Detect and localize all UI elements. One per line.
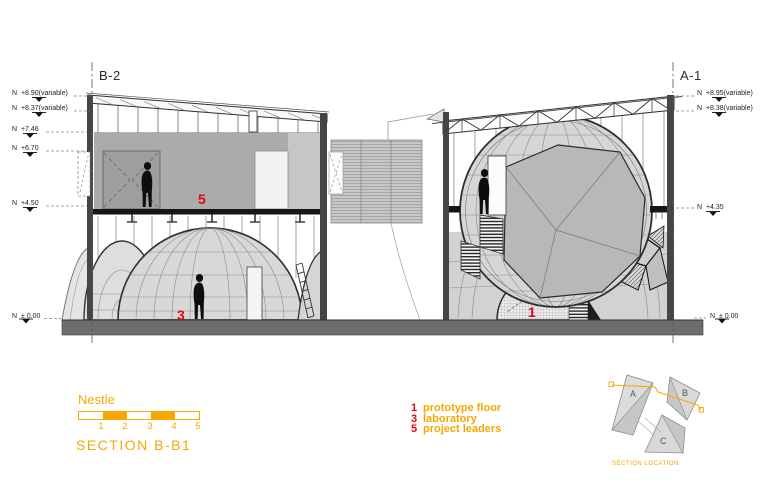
level-label: N +8.37(variable) <box>12 105 68 112</box>
level-label: N +6.70 <box>12 145 39 152</box>
room-legend: 1prototype floor 3laboratory 5project le… <box>411 403 501 435</box>
scale-segment <box>127 412 151 419</box>
key-plan-caption: SECTION LOCATION <box>612 460 679 467</box>
sphere-doorway <box>488 156 506 215</box>
legend-number: 1 <box>411 403 423 414</box>
scale-tick: 2 <box>119 421 131 432</box>
level-label: N +4.35 <box>697 204 724 211</box>
side-fin-panel <box>78 152 90 196</box>
roof-wedge <box>427 109 444 122</box>
key-plan-label-b: B <box>682 388 688 398</box>
scale-tick: 3 <box>144 421 156 432</box>
scale-segment <box>79 412 103 419</box>
scale-tick: 4 <box>168 421 180 432</box>
level-label: N +8.95(variable) <box>697 90 753 97</box>
upper-door <box>255 151 288 209</box>
legend-item: 5project leaders <box>411 424 501 435</box>
key-plan: A B C SECTION LOCATION <box>609 375 704 467</box>
right-building-left-wall <box>443 112 449 320</box>
stair-flight-upper <box>480 215 503 254</box>
drawing-sheet: B-2 A-1 N +8.90(variable) N +8.37(variab… <box>0 0 760 489</box>
scale-segment <box>151 412 175 419</box>
roof-hatch <box>249 111 257 132</box>
tag-laboratory: 3 <box>177 307 185 323</box>
tag-project-leaders: 5 <box>198 191 206 207</box>
level-markers-right: N +8.95(variable) N +8.38(variable) N +4… <box>676 90 753 324</box>
level-label: N +8.90(variable) <box>12 90 68 97</box>
left-building-right-wall <box>320 113 327 320</box>
drawing-title: SECTION B-B1 <box>76 437 191 453</box>
bridge-block <box>329 114 433 320</box>
level-label: N +7.46 <box>12 126 39 133</box>
key-plan-label-c: C <box>660 436 667 446</box>
client-name: Nestle <box>78 392 115 407</box>
level-label: N +8.38(variable) <box>697 105 753 112</box>
tag-prototype-floor: 1 <box>528 304 536 320</box>
level-label: N +4.50 <box>12 200 39 207</box>
left-roof <box>88 95 327 122</box>
left-building <box>62 93 329 320</box>
legend-number: 5 <box>411 424 423 435</box>
void-outline <box>388 114 433 140</box>
grid-label-b2: B-2 <box>99 68 121 83</box>
key-plan-label-a: A <box>630 389 636 399</box>
lab-door <box>247 267 262 320</box>
legend-label: project leaders <box>423 423 501 435</box>
right-building <box>427 95 682 320</box>
scale-tick: 5 <box>192 421 204 432</box>
floor-slab <box>88 209 327 215</box>
scale-segment <box>175 412 199 419</box>
ground-slab <box>62 320 703 335</box>
grid-label-a1: A-1 <box>680 68 702 83</box>
scale-bar <box>78 411 200 420</box>
scale-tick: 1 <box>95 421 107 432</box>
scale-segment <box>103 412 127 419</box>
